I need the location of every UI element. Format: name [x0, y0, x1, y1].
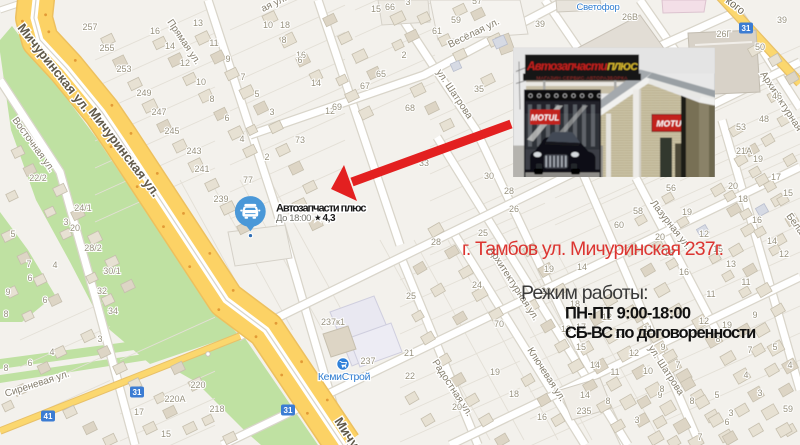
svg-text:245: 245 — [164, 126, 179, 136]
svg-text:68: 68 — [405, 103, 415, 113]
svg-text:3: 3 — [728, 408, 733, 418]
svg-text:46: 46 — [772, 91, 782, 101]
svg-text:11: 11 — [209, 38, 218, 48]
svg-text:19: 19 — [544, 264, 554, 274]
svg-text:6: 6 — [27, 358, 32, 368]
svg-text:28: 28 — [504, 186, 514, 196]
svg-text:8: 8 — [605, 396, 610, 406]
svg-text:7: 7 — [675, 360, 680, 370]
svg-text:25: 25 — [406, 291, 416, 301]
svg-text:13: 13 — [726, 259, 736, 269]
svg-text:Светофор: Светофор — [576, 2, 619, 13]
svg-text:59: 59 — [451, 15, 461, 25]
svg-text:6: 6 — [224, 113, 229, 123]
svg-text:Режим работы:: Режим работы: — [521, 282, 648, 304]
svg-text:31: 31 — [133, 388, 142, 397]
svg-text:241: 241 — [194, 164, 209, 174]
svg-text:35: 35 — [474, 84, 484, 94]
svg-text:6: 6 — [42, 295, 47, 305]
svg-text:25: 25 — [478, 228, 488, 238]
svg-text:3: 3 — [97, 334, 102, 344]
svg-text:16: 16 — [679, 267, 689, 277]
svg-text:237: 237 — [360, 356, 375, 366]
svg-text:30/1: 30/1 — [103, 266, 121, 276]
svg-text:24/1: 24/1 — [74, 203, 92, 213]
svg-text:Автозапчасти: Автозапчасти — [526, 59, 607, 73]
svg-text:26Г: 26Г — [717, 29, 732, 39]
svg-text:8: 8 — [209, 94, 214, 104]
svg-text:237к1: 237к1 — [321, 317, 345, 327]
svg-text:77: 77 — [243, 175, 253, 185]
svg-text:12: 12 — [180, 58, 190, 68]
svg-text:2: 2 — [401, 50, 406, 60]
svg-text:53: 53 — [736, 122, 746, 132]
svg-text:4: 4 — [743, 370, 748, 380]
svg-text:10: 10 — [196, 77, 206, 87]
svg-text:9: 9 — [660, 342, 665, 352]
svg-text:16: 16 — [150, 26, 160, 36]
svg-text:17: 17 — [134, 407, 144, 417]
svg-text:39: 39 — [777, 15, 787, 25]
svg-text:7: 7 — [697, 432, 702, 442]
svg-text:30: 30 — [484, 171, 494, 181]
svg-text:60: 60 — [614, 220, 624, 230]
svg-text:12: 12 — [779, 249, 789, 259]
svg-text:56: 56 — [666, 183, 676, 193]
svg-text:220А: 220А — [164, 394, 185, 404]
svg-text:3: 3 — [634, 415, 639, 425]
svg-text:249: 249 — [136, 88, 151, 98]
svg-text:28: 28 — [431, 237, 441, 247]
svg-text:5: 5 — [254, 89, 259, 99]
svg-text:14: 14 — [165, 41, 175, 51]
svg-text:15: 15 — [161, 429, 171, 439]
svg-text:8: 8 — [281, 35, 286, 45]
svg-text:10: 10 — [643, 366, 653, 376]
svg-text:24: 24 — [472, 280, 482, 290]
svg-text:8: 8 — [689, 396, 694, 406]
svg-text:26: 26 — [509, 204, 519, 214]
svg-text:КемиСтрой: КемиСтрой — [318, 371, 371, 383]
svg-text:253: 253 — [116, 64, 131, 74]
svg-text:16: 16 — [752, 215, 762, 225]
svg-text:6: 6 — [297, 55, 302, 65]
svg-text:20: 20 — [728, 181, 738, 191]
svg-text:31: 31 — [284, 406, 293, 415]
svg-text:14: 14 — [590, 360, 600, 370]
svg-text:18: 18 — [280, 20, 290, 30]
svg-text:255: 255 — [99, 43, 114, 53]
svg-text:17: 17 — [771, 172, 781, 182]
svg-text:218: 218 — [209, 404, 224, 414]
svg-text:3: 3 — [63, 217, 68, 227]
svg-text:3: 3 — [757, 388, 762, 398]
svg-text:239: 239 — [213, 194, 228, 204]
svg-text:16: 16 — [537, 412, 547, 422]
svg-text:4: 4 — [787, 360, 792, 370]
svg-text:MOTUL: MOTUL — [531, 114, 560, 123]
svg-text:21: 21 — [404, 348, 414, 358]
svg-text:3: 3 — [405, 0, 410, 7]
svg-text:7: 7 — [240, 72, 245, 82]
svg-text:15: 15 — [576, 342, 586, 352]
svg-text:5: 5 — [10, 229, 15, 239]
svg-text:22: 22 — [405, 371, 415, 381]
svg-text:39: 39 — [535, 19, 545, 29]
svg-text:21А: 21А — [736, 146, 752, 156]
svg-text:г. Тамбов ул. Мичуринская 237г: г. Тамбов ул. Мичуринская 237г. — [462, 238, 723, 260]
svg-text:12: 12 — [629, 348, 639, 358]
svg-text:20: 20 — [70, 223, 80, 233]
svg-text:11: 11 — [706, 289, 715, 299]
svg-text:4: 4 — [239, 134, 244, 144]
svg-text:247: 247 — [151, 107, 166, 117]
svg-text:48: 48 — [759, 114, 769, 124]
svg-text:5: 5 — [772, 342, 777, 352]
svg-text:220: 220 — [190, 380, 205, 390]
svg-text:59: 59 — [783, 404, 793, 414]
svg-text:5: 5 — [714, 390, 719, 400]
svg-text:73: 73 — [295, 135, 305, 145]
svg-text:257: 257 — [82, 22, 97, 32]
svg-text:11: 11 — [741, 277, 750, 287]
svg-text:67: 67 — [360, 81, 370, 91]
svg-text:243: 243 — [186, 146, 201, 156]
svg-text:20: 20 — [452, 402, 462, 412]
svg-text:8: 8 — [659, 384, 664, 394]
svg-text:14: 14 — [767, 236, 777, 246]
svg-text:19: 19 — [753, 154, 763, 164]
svg-text:58: 58 — [633, 206, 643, 216]
svg-text:11: 11 — [610, 367, 619, 377]
svg-text:2: 2 — [264, 152, 269, 162]
svg-text:15: 15 — [371, 4, 381, 14]
svg-text:34: 34 — [108, 306, 118, 316]
svg-text:50: 50 — [755, 42, 765, 52]
svg-text:32: 32 — [97, 286, 107, 296]
svg-text:14: 14 — [580, 390, 590, 400]
svg-text:26В: 26В — [622, 12, 638, 22]
svg-text:235: 235 — [576, 406, 591, 416]
svg-text:19: 19 — [490, 367, 500, 377]
svg-text:18: 18 — [509, 389, 519, 399]
svg-text:3: 3 — [269, 107, 274, 117]
svg-text:4,3: 4,3 — [323, 213, 337, 224]
svg-text:13: 13 — [193, 18, 203, 28]
svg-text:31: 31 — [742, 24, 751, 33]
svg-text:9: 9 — [5, 287, 10, 297]
svg-text:65: 65 — [376, 69, 386, 79]
svg-text:9: 9 — [752, 310, 757, 320]
svg-text:18: 18 — [738, 194, 748, 204]
svg-text:6: 6 — [724, 417, 729, 427]
svg-text:6: 6 — [27, 273, 32, 283]
svg-text:70: 70 — [494, 319, 504, 329]
svg-text:61: 61 — [432, 26, 442, 36]
svg-text:СБ-ВС по договоренности: СБ-ВС по договоренности — [565, 324, 755, 342]
svg-text:15: 15 — [783, 188, 793, 198]
svg-text:ПН-ПТ 9:00-18:00: ПН-ПТ 9:00-18:00 — [565, 305, 691, 323]
svg-text:28/2: 28/2 — [84, 243, 102, 253]
svg-text:До 18:00: До 18:00 — [276, 213, 311, 224]
svg-text:8: 8 — [3, 363, 8, 373]
svg-text:7: 7 — [26, 259, 31, 269]
svg-text:ПЛЮС: ПЛЮС — [607, 61, 638, 73]
svg-text:41: 41 — [44, 412, 53, 421]
svg-text:22/2: 22/2 — [29, 173, 47, 183]
svg-text:14: 14 — [577, 262, 587, 272]
svg-text:4: 4 — [49, 347, 54, 357]
svg-text:9: 9 — [225, 54, 230, 64]
svg-text:8: 8 — [3, 309, 8, 319]
svg-text:19: 19 — [682, 207, 692, 217]
svg-text:10: 10 — [263, 20, 273, 30]
svg-text:★: ★ — [314, 213, 322, 223]
svg-text:7: 7 — [747, 345, 752, 355]
svg-text:66: 66 — [385, 2, 395, 12]
svg-text:69: 69 — [332, 102, 342, 112]
svg-text:4: 4 — [52, 260, 57, 270]
svg-text:57: 57 — [472, 0, 482, 6]
svg-text:14: 14 — [311, 78, 321, 88]
